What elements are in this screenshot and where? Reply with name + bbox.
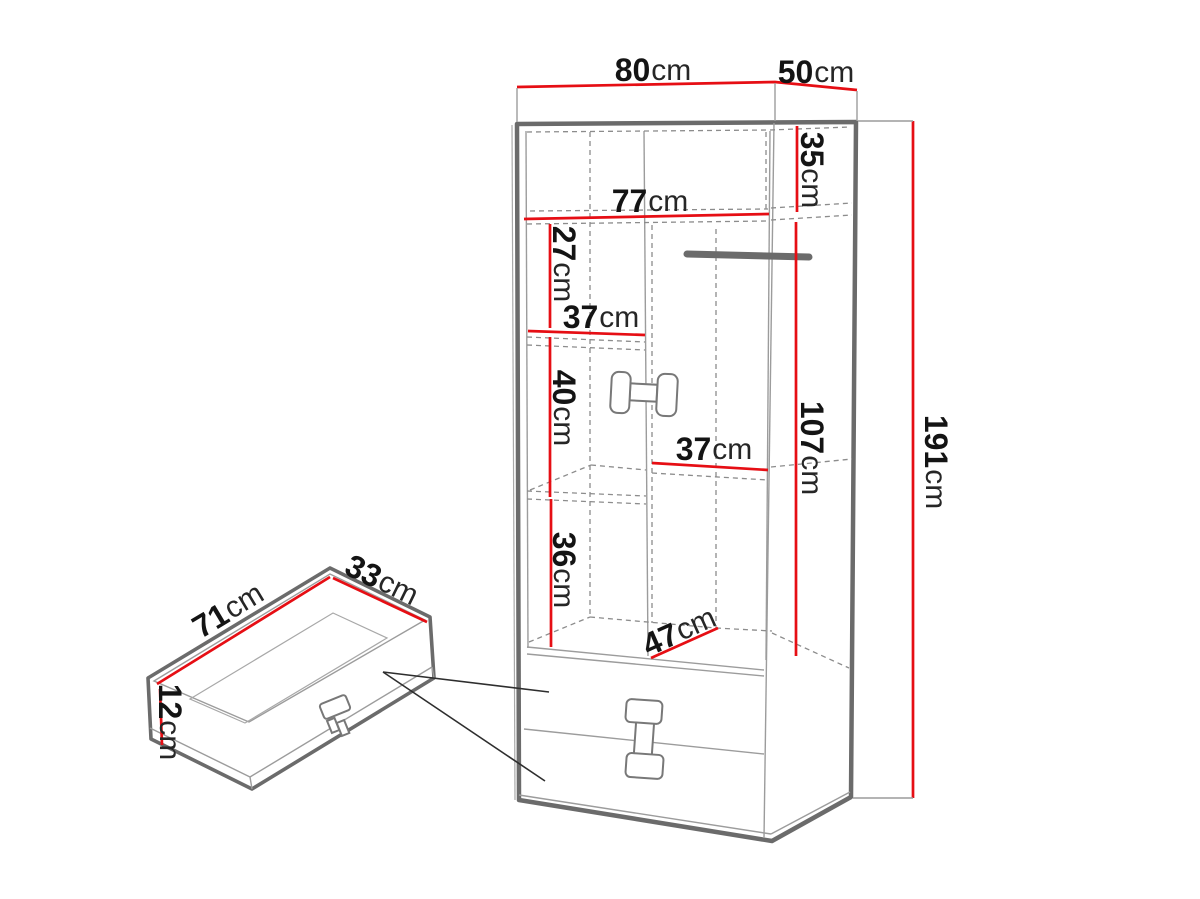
dim-right-shelf-unit: cm [712, 433, 752, 466]
dim-upper-gap-unit: cm [548, 262, 581, 302]
dim-interior-width-unit: cm [648, 185, 688, 218]
dim-width-value: 80 [615, 52, 651, 88]
dim-middle-gap-label: 40cm [546, 370, 582, 447]
dim-top-section-value: 35 [794, 132, 830, 168]
dim-top-section-unit: cm [796, 168, 829, 208]
dimension-diagram: 80cm 50cm 35cm 77cm 27cm 37cm 40cm 37cm … [0, 0, 1200, 899]
dim-interior-width-label: 77cm [612, 183, 689, 219]
dim-drawer-height-value: 12 [152, 684, 188, 720]
dim-left-shelf-label: 37cm [563, 299, 640, 335]
dim-depth-unit: cm [814, 56, 854, 89]
dim-width-unit: cm [651, 54, 691, 87]
hanging-rail [687, 254, 809, 257]
dim-middle-gap-unit: cm [548, 406, 581, 446]
dim-lower-gap-unit: cm [548, 568, 581, 608]
dim-right-shelf-label: 37cm [676, 431, 753, 467]
dim-left-shelf-unit: cm [599, 301, 639, 334]
dim-total-height-label: 191cm [918, 415, 954, 509]
dim-middle-gap-value: 40 [546, 370, 582, 406]
dim-width-label: 80cm [615, 52, 692, 88]
dim-drawer-height-label: 12cm [152, 684, 188, 761]
dim-hanging-height-value: 107 [794, 401, 830, 454]
dim-depth-label: 50cm [778, 54, 855, 90]
dim-top-section-label: 35cm [794, 132, 830, 209]
dim-hanging-height-unit: cm [796, 455, 829, 495]
dim-total-height-unit: cm [920, 469, 953, 509]
dim-depth-value: 50 [778, 54, 814, 90]
dim-lower-gap-label: 36cm [546, 532, 582, 609]
dim-hanging-height-label: 107cm [794, 401, 830, 495]
dim-interior-width-value: 77 [612, 183, 648, 219]
dim-total-height-value: 191 [918, 415, 954, 468]
dim-left-shelf-value: 37 [563, 299, 599, 335]
dim-drawer-height-unit: cm [154, 720, 187, 760]
dim-right-shelf-value: 37 [676, 431, 712, 467]
dim-lower-gap-value: 36 [546, 532, 582, 568]
dim-upper-gap-value: 27 [546, 226, 582, 262]
dim-upper-gap-label: 27cm [546, 226, 582, 303]
diagram-canvas: 80cm 50cm 35cm 77cm 27cm 37cm 40cm 37cm … [0, 0, 1200, 899]
